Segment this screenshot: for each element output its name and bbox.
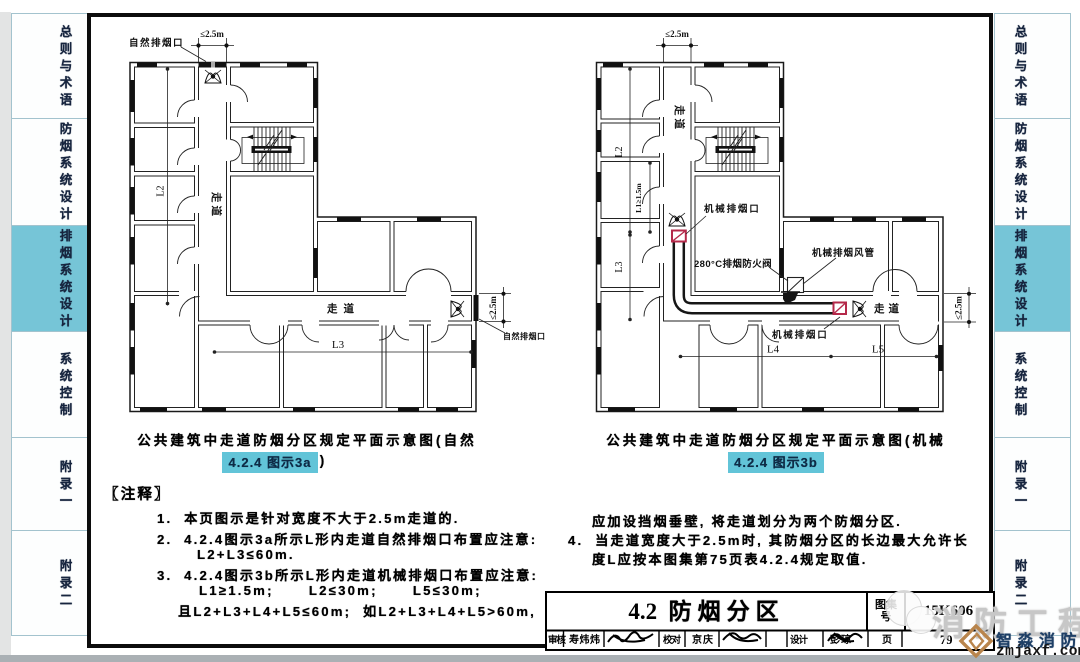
svg-text:≤2.5m: ≤2.5m: [665, 29, 689, 39]
svg-text:L3: L3: [614, 261, 625, 272]
svg-text:审核: 审核: [548, 634, 567, 646]
svg-text:校对: 校对: [663, 634, 682, 646]
svg-text:L1≥1.5m: L1≥1.5m: [634, 183, 643, 213]
svg-text:L2: L2: [156, 185, 167, 196]
svg-text:机械排烟口: 机械排烟口: [704, 203, 761, 215]
svg-text:机械排烟口: 机械排烟口: [772, 329, 829, 341]
svg-text:L3: L3: [332, 339, 345, 351]
svg-text:≤2.5m: ≤2.5m: [954, 296, 964, 320]
svg-text:走道: 走道: [210, 191, 223, 219]
svg-text:L5: L5: [872, 344, 885, 356]
svg-text:寿炜炜: 寿炜炜: [569, 633, 601, 646]
svg-text:L2: L2: [614, 146, 625, 157]
svg-text:自然排烟口: 自然排烟口: [129, 37, 184, 49]
svg-text:≤2.5m: ≤2.5m: [200, 29, 224, 39]
svg-text:设计: 设计: [790, 634, 809, 646]
svg-text:≤2.5m: ≤2.5m: [488, 296, 498, 320]
svg-text:页: 页: [882, 634, 892, 646]
svg-text:自然排烟口: 自然排烟口: [503, 331, 546, 341]
svg-text:机械排烟风管: 机械排烟风管: [812, 247, 875, 259]
svg-text:走道: 走道: [873, 302, 903, 315]
svg-text:走道: 走道: [673, 104, 686, 132]
svg-text:L4: L4: [767, 344, 780, 356]
svg-text:京庆: 京庆: [692, 633, 714, 646]
svg-text:走道: 走道: [326, 302, 360, 315]
svg-text:280°C排烟防火阀: 280°C排烟防火阀: [694, 258, 772, 270]
